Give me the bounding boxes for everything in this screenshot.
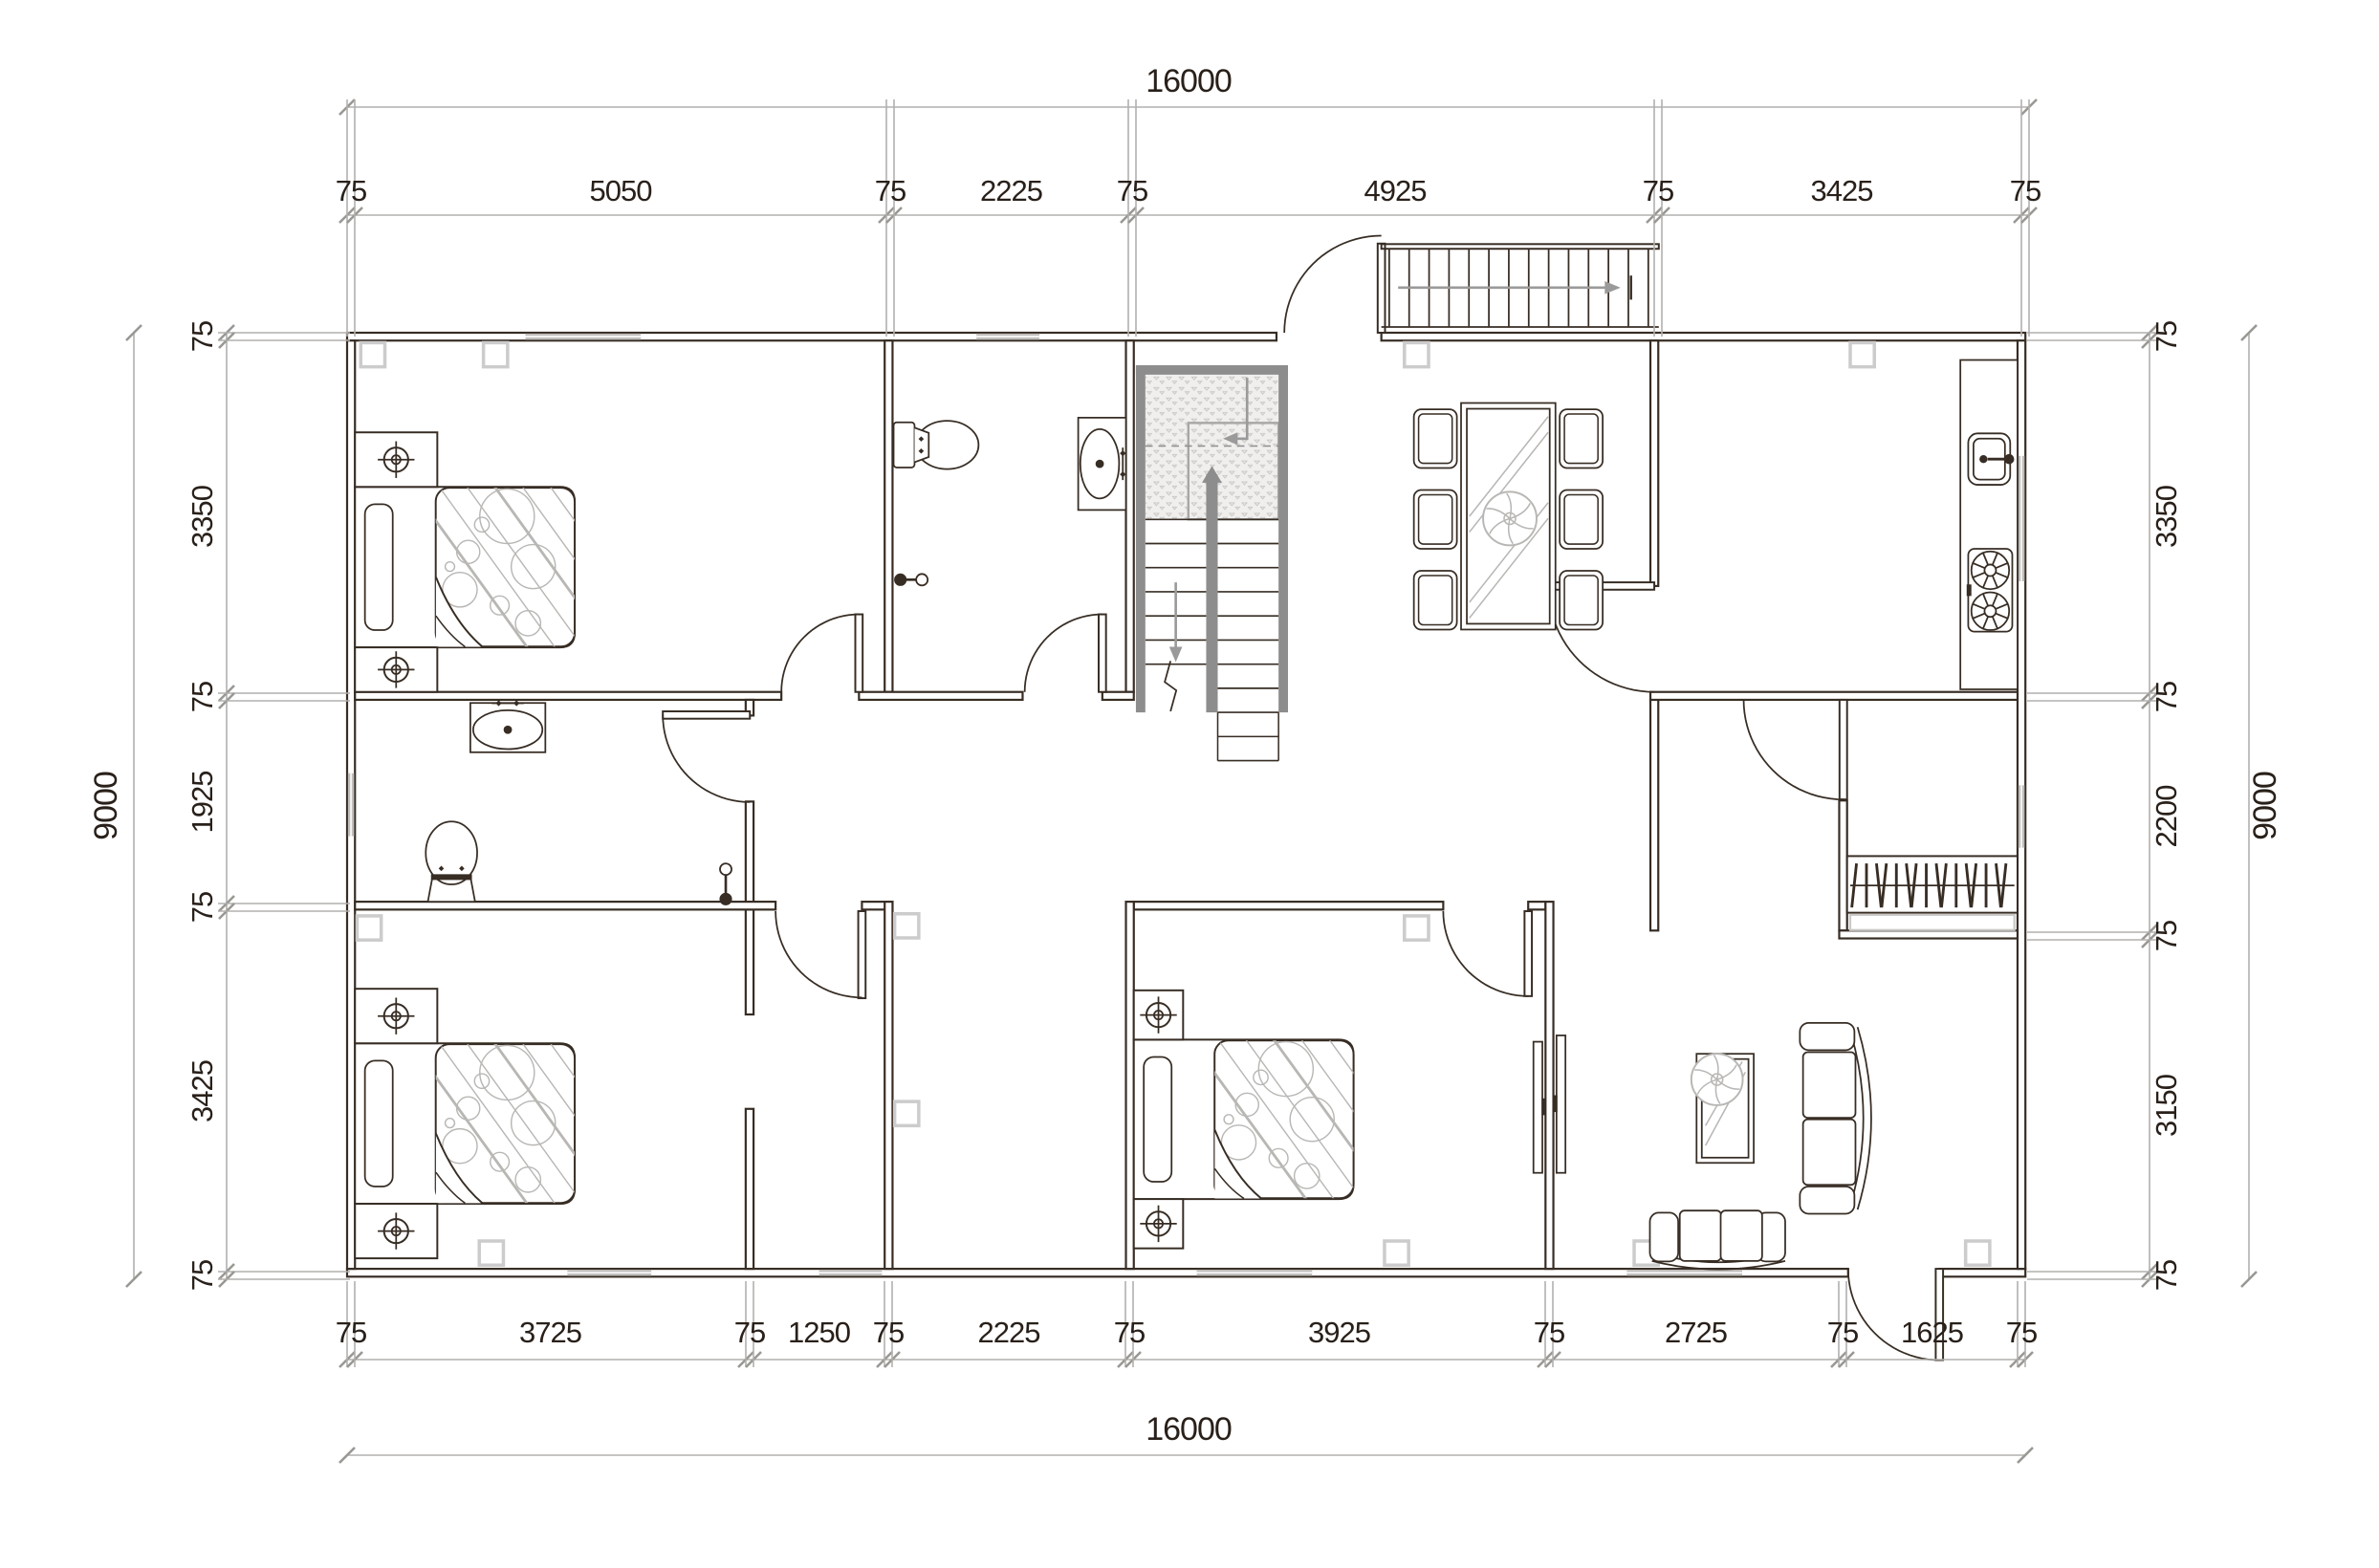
duvet-stripe [567,471,714,675]
nightstand-lamp-icon [1134,991,1184,1040]
gas-stove-icon [1967,549,2013,632]
vanity-sink-icon [470,700,545,751]
column-marker [1385,1241,1408,1265]
stair-wall-top [1136,365,1288,375]
window-bed1-top [525,334,641,339]
dim-label: 75 [2010,174,2041,207]
living-room [1534,1023,1871,1270]
potted-plant-icon [1483,491,1537,545]
wall-bedmid-right [1545,902,1553,1269]
wardrobe-box [1847,856,2018,912]
wall-mid-a [355,692,781,700]
dim-label: 2200 [2150,785,2183,848]
wall-mid-c [1102,692,1134,700]
arc-storage [775,911,862,997]
dim-label: 75 [1643,174,1673,207]
door-leaf-bathroom-top [1099,615,1106,692]
double-bed-icon [355,1028,713,1231]
wall-mid-b [859,692,1022,700]
dim-label: 75 [1117,174,1147,207]
dim-label: 75 [186,1260,219,1291]
dim-label: 9000 [2247,772,2283,840]
window-kitchen-right [2019,456,2024,581]
chair-inner [1419,414,1452,464]
dim-label: 75 [186,321,219,352]
wall-bed3-closet-a [746,909,753,1014]
stair-down-arrow-head [1169,647,1183,663]
wall-storage-right [884,902,892,1269]
door-leaf-bathroom-mid [663,711,750,719]
dim-label: 75 [336,1316,366,1349]
dim-label: 75 [2006,1316,2037,1349]
dim-label: 5050 [590,174,653,207]
stair-center-stringer [1206,474,1217,712]
vanity-sink-icon [1079,418,1126,511]
tv-living-icon [1554,1035,1566,1173]
window-bath-top [976,334,1039,339]
dim-label: 75 [1534,1316,1564,1349]
dim-label: 75 [2150,921,2183,951]
kitchen-counter [1960,360,2018,689]
dim-label: 1625 [1901,1316,1963,1349]
wall-closet-left [1839,800,1846,930]
chair-inner [1564,414,1598,464]
nightstand-lamp-icon [1134,1199,1184,1249]
column-marker [895,1101,919,1125]
dim-label: 16000 [1146,1411,1232,1448]
wall-low-c [1134,902,1444,909]
dim-label: 3725 [519,1316,581,1349]
toilet-icon [426,821,477,902]
dim-label: 16000 [1146,63,1232,99]
wall-bath2-divider [746,801,753,902]
dim-label: 3925 [1308,1316,1370,1349]
arc-bathroom-top [1025,615,1102,692]
dim-label: 75 [2150,1260,2183,1291]
pillow [365,1060,393,1187]
door-leaf-bedroom-mid [1524,911,1532,996]
arc-bedroom1 [781,615,859,692]
dim-label: 3350 [186,485,219,548]
dining-chair-icon [1414,490,1457,549]
column-marker [357,916,381,940]
chair-inner [1419,576,1452,625]
shower-mixer-icon [894,574,928,586]
dim-label: 2225 [980,174,1042,207]
wall-bottom-right [1939,1269,2025,1276]
window-closet-right [2019,785,2024,847]
door-leaf-entry-top [1378,244,1386,333]
window-living-bottom [1626,1270,1742,1275]
dim-label: 75 [2150,321,2183,352]
door-leaf-closet-corridor [1840,700,1847,799]
dining-chair-icon [1414,409,1457,468]
dim-label: 75 [1114,1316,1145,1349]
pillow [365,504,393,630]
column-marker [895,914,919,938]
kitchen [1960,360,2018,689]
dim-label: 3350 [2150,485,2183,548]
dim-label: 1250 [788,1316,851,1349]
dining-chair-icon [1560,571,1603,629]
dim-label: 9000 [88,772,124,840]
wall-kitchen-upper [1650,340,1658,586]
dim-label: 3425 [1811,174,1873,207]
stair-lower-treads [1218,712,1279,760]
column-marker [1405,342,1429,366]
porch-top-rail [1382,244,1659,249]
porch-up-arrow-head [1604,281,1620,294]
wardrobe-shelf [1850,915,2015,930]
column-marker [1850,342,1874,366]
arc-entry-top [1284,236,1381,333]
column-marker [1405,916,1429,940]
arc-bathroom-mid [663,715,750,802]
column-marker [484,342,508,366]
bathroom-top [894,418,1126,586]
dim-label: 2725 [1665,1316,1727,1349]
double-bed-icon [1134,1024,1493,1227]
wall-top-left [347,333,1277,340]
stair-break-line [1165,661,1176,711]
wall-corridor-left [1650,700,1658,930]
wall-bath-stair [1126,340,1134,691]
wall-bed1-bath [884,340,892,691]
door-leaf-storage [859,911,866,998]
dim-label: 75 [336,174,366,207]
dim-label: 75 [186,892,219,923]
tv-bedroom-icon [1534,1042,1546,1173]
window-storage-bottom [819,1270,883,1275]
wall-top-right [1382,333,2026,340]
dim-label: 75 [875,174,906,207]
loveseat-icon [1649,1210,1785,1269]
wall-bedmid-left [1126,902,1134,1269]
toilet-icon [894,421,979,468]
exterior-stair-porch [1382,244,1659,327]
floor-plan-canvas: 1600075505075222575492575342575753725751… [0,0,2379,1568]
nightstand-lamp-icon [355,647,437,692]
shower-mixer-icon [719,863,731,905]
dim-label: 4925 [1364,174,1427,207]
dining-set [1414,403,1603,629]
window-bath2-left [348,773,354,837]
chair-inner [1564,494,1598,544]
arc-closet-corridor [1744,700,1844,799]
stair-wall-right [1278,365,1288,712]
dim-label: 3425 [186,1060,219,1122]
chair-inner [1419,494,1452,544]
wall-bed3-closet-b [746,1109,753,1269]
dim-label: 75 [2150,682,2183,712]
wardrobe [1847,856,2018,929]
door-leaf-bedroom1 [855,615,862,692]
chair-inner [1564,576,1598,625]
column-marker [479,1241,503,1265]
dim-label: 75 [1827,1316,1858,1349]
arc-bedroom-mid [1443,911,1528,996]
staircase [1136,365,1288,761]
double-bed-icon [355,471,713,675]
bathroom-mid [426,700,731,905]
dining-chair-icon [1560,409,1603,468]
potted-plant-icon [1691,1054,1743,1105]
coffee-table-icon [1691,1054,1754,1163]
dim-label: 2225 [978,1316,1040,1349]
nightstand-lamp-icon [355,432,437,487]
dim-label: 75 [873,1316,904,1349]
wall-closet-bottom [1839,930,2017,938]
pillow [1144,1056,1171,1182]
column-marker [360,342,384,366]
dim-label: 1925 [186,772,219,834]
duvet-stripe [1345,1024,1493,1227]
dim-label: 3150 [2150,1074,2183,1137]
stair-wall-left [1136,365,1146,712]
dining-chair-icon [1560,490,1603,549]
nightstand-lamp-icon [355,1204,437,1258]
dim-label: 75 [734,1316,765,1349]
kitchen-sink-icon [1968,433,2014,485]
wall-low-a [355,902,775,909]
wall-low-d [1528,902,1545,909]
window-bed3-bottom [567,1270,651,1275]
curved-sofa-icon [1800,1023,1871,1214]
dim-label: 75 [186,682,219,712]
column-marker [1966,1241,1990,1265]
nightstand-lamp-icon [355,989,437,1043]
duvet-stripe [567,1028,714,1231]
window-bedmid-bottom [1197,1270,1313,1275]
floor-plan-drawing: 1600075505075222575492575342575753725751… [0,0,2379,1568]
dining-chair-icon [1414,571,1457,629]
wall-mid-d [1650,692,2018,700]
plan-layer [347,236,2025,1361]
